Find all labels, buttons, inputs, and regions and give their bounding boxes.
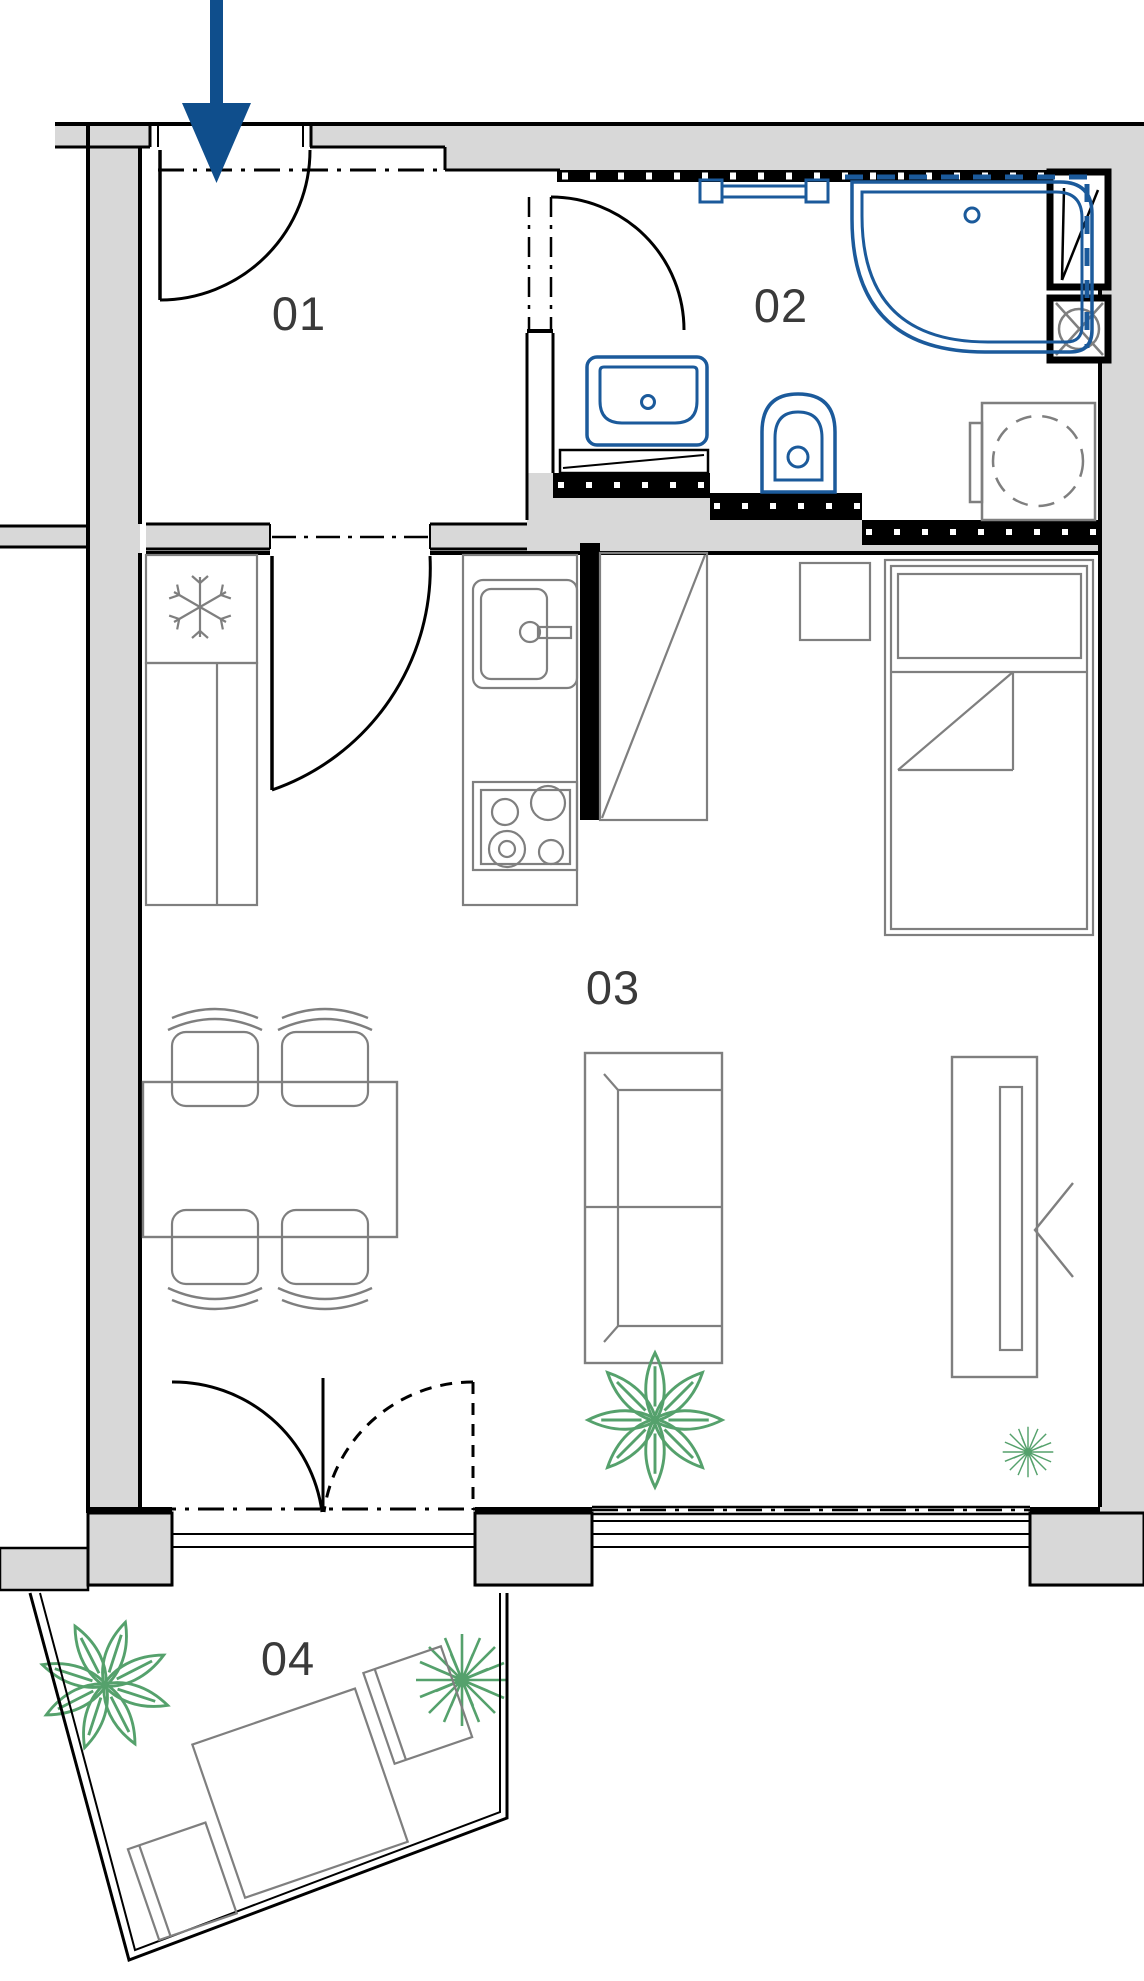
balcony-chair xyxy=(128,1823,237,1940)
dining-chair xyxy=(278,1009,372,1106)
entrance-door xyxy=(158,150,443,300)
nightstand xyxy=(800,563,870,640)
bathroom-door xyxy=(529,197,684,330)
pillow xyxy=(898,574,1081,658)
plant-icon xyxy=(22,1602,188,1768)
wardrobe xyxy=(600,553,707,820)
floor-plan-canvas: 01 02 03 04 xyxy=(0,0,1144,1981)
kitchen-sink xyxy=(473,580,577,688)
washing-machine xyxy=(970,403,1095,520)
floor-plan: 01 02 03 04 xyxy=(0,0,1144,1981)
installation-shaft xyxy=(1050,172,1108,287)
chevron-left-icon xyxy=(1035,1183,1073,1277)
dining-chair xyxy=(168,1009,262,1106)
room-label-03: 03 xyxy=(586,961,640,1014)
dining-chair xyxy=(278,1210,372,1309)
balcony-door xyxy=(150,1378,480,1547)
plant-icon xyxy=(416,1634,508,1726)
plant-icon xyxy=(1003,1427,1054,1478)
towel-rail xyxy=(700,180,828,202)
plant-icon xyxy=(588,1353,722,1487)
faucet-lever xyxy=(538,627,571,638)
sofa xyxy=(585,1053,722,1363)
entrance-arrow-icon xyxy=(182,0,251,183)
toilet xyxy=(762,394,835,492)
vanity-counter xyxy=(560,450,708,473)
room-label-02: 02 xyxy=(754,279,808,332)
tv xyxy=(1000,1087,1022,1350)
partition-wall-stub xyxy=(580,543,600,820)
room-label-01: 01 xyxy=(272,287,326,340)
basin-drain-icon xyxy=(642,396,655,409)
living-room-door xyxy=(272,537,430,790)
bathroom-fixtures xyxy=(587,177,1092,492)
washbasin xyxy=(587,357,707,445)
living-room-window xyxy=(592,1510,1030,1547)
kitchen-counter-left xyxy=(146,555,257,905)
detergent-drawer xyxy=(970,423,982,502)
tv-cabinet xyxy=(952,1057,1073,1377)
shower-drain-icon xyxy=(965,208,979,222)
room-label-04: 04 xyxy=(261,1632,315,1685)
dining-set xyxy=(143,1009,397,1309)
dining-chair xyxy=(168,1210,262,1309)
snowflake-icon xyxy=(169,576,231,638)
bed xyxy=(885,560,1093,935)
stove xyxy=(473,782,577,870)
kitchen-counter-right xyxy=(463,555,577,905)
